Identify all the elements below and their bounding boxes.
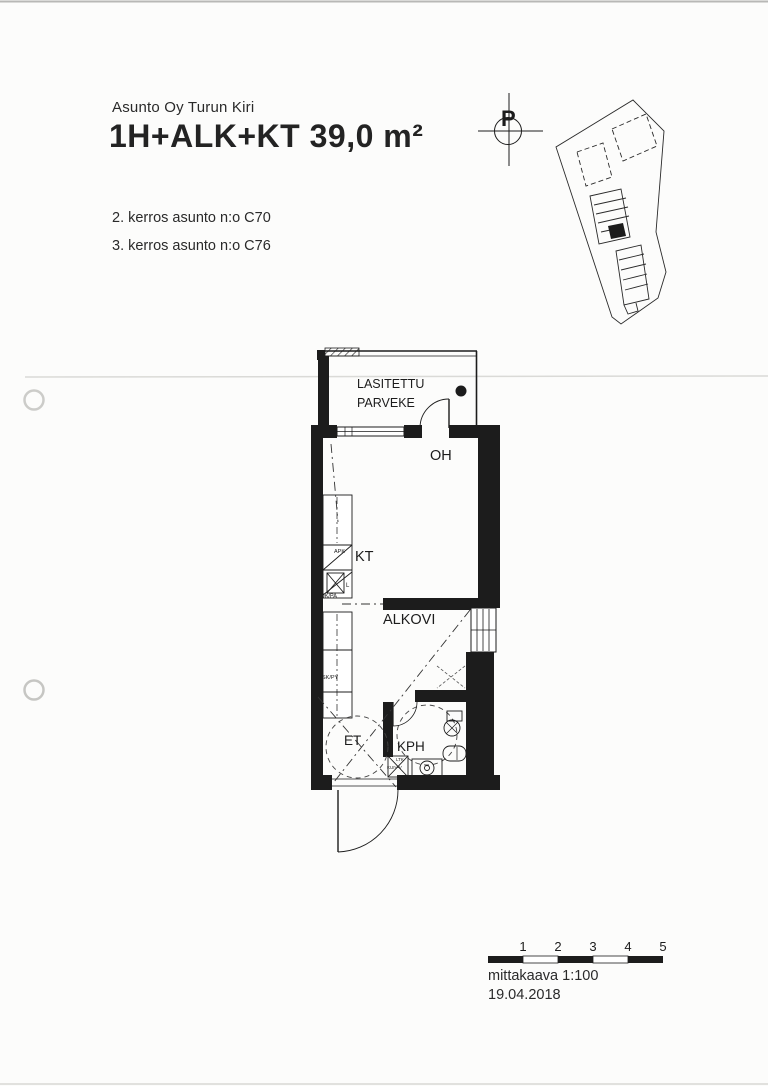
balcony-door: [420, 399, 449, 428]
scale-bar: 1 2 3 4 5: [488, 939, 667, 963]
balcony-hatch-block: [325, 348, 359, 356]
washing-machine-icon: [412, 759, 442, 777]
alcove-window: [471, 608, 496, 652]
bathroom-door: [393, 702, 417, 726]
floor-plan: APK L JK/PA SK/PY: [311, 348, 500, 852]
room-label-balcony-1: LASITETTU: [357, 377, 424, 391]
scale-tick-5: 5: [659, 939, 666, 954]
room-label-hall: ET: [344, 733, 361, 748]
sink-icon: [443, 746, 466, 761]
reserved-cabinet-dashes: [437, 666, 465, 688]
closet-label: SK/PY: [322, 675, 339, 681]
laundry-label-1: LTK: [396, 757, 404, 762]
closet-run: SK/PY: [322, 612, 352, 718]
scale-tick-1: 1: [519, 939, 526, 954]
scan-artifacts: [0, 2, 768, 1085]
entry-door: [332, 779, 398, 852]
site-building-lower: [616, 245, 649, 314]
room-label-alcove: ALKOVI: [383, 612, 435, 628]
dishwasher-label: APK: [334, 549, 345, 555]
punch-hole-bottom: [25, 681, 44, 700]
site-boundary: [556, 100, 666, 324]
balcony-drain-dot: [456, 386, 467, 397]
punch-hole-top: [25, 391, 44, 410]
site-building-dashed-2: [577, 143, 612, 186]
room-label-balcony-2: PARVEKE: [357, 396, 415, 410]
scale-tick-4: 4: [624, 939, 631, 954]
laundry-label-2: KUIV-V: [387, 765, 402, 770]
scale-tick-2: 2: [554, 939, 561, 954]
north-label: P: [501, 106, 516, 131]
document-graphics: P: [0, 0, 768, 1086]
room-label-bathroom: KPH: [397, 739, 425, 754]
toilet-icon: [444, 711, 462, 736]
room-label-kitchen: KT: [355, 549, 374, 565]
site-plan: [556, 100, 666, 324]
room-label-living-room: OH: [430, 448, 452, 464]
site-building-this: [590, 189, 630, 244]
site-building-dashed-1: [612, 114, 657, 161]
north-arrow-icon: P: [478, 93, 543, 166]
fridge-label: JK/PA: [322, 594, 337, 600]
kitchen-counter: APK L JK/PA: [322, 495, 352, 600]
balcony-window: [337, 427, 404, 436]
scale-tick-3: 3: [589, 939, 596, 954]
apartment-location-marker: [608, 223, 626, 239]
